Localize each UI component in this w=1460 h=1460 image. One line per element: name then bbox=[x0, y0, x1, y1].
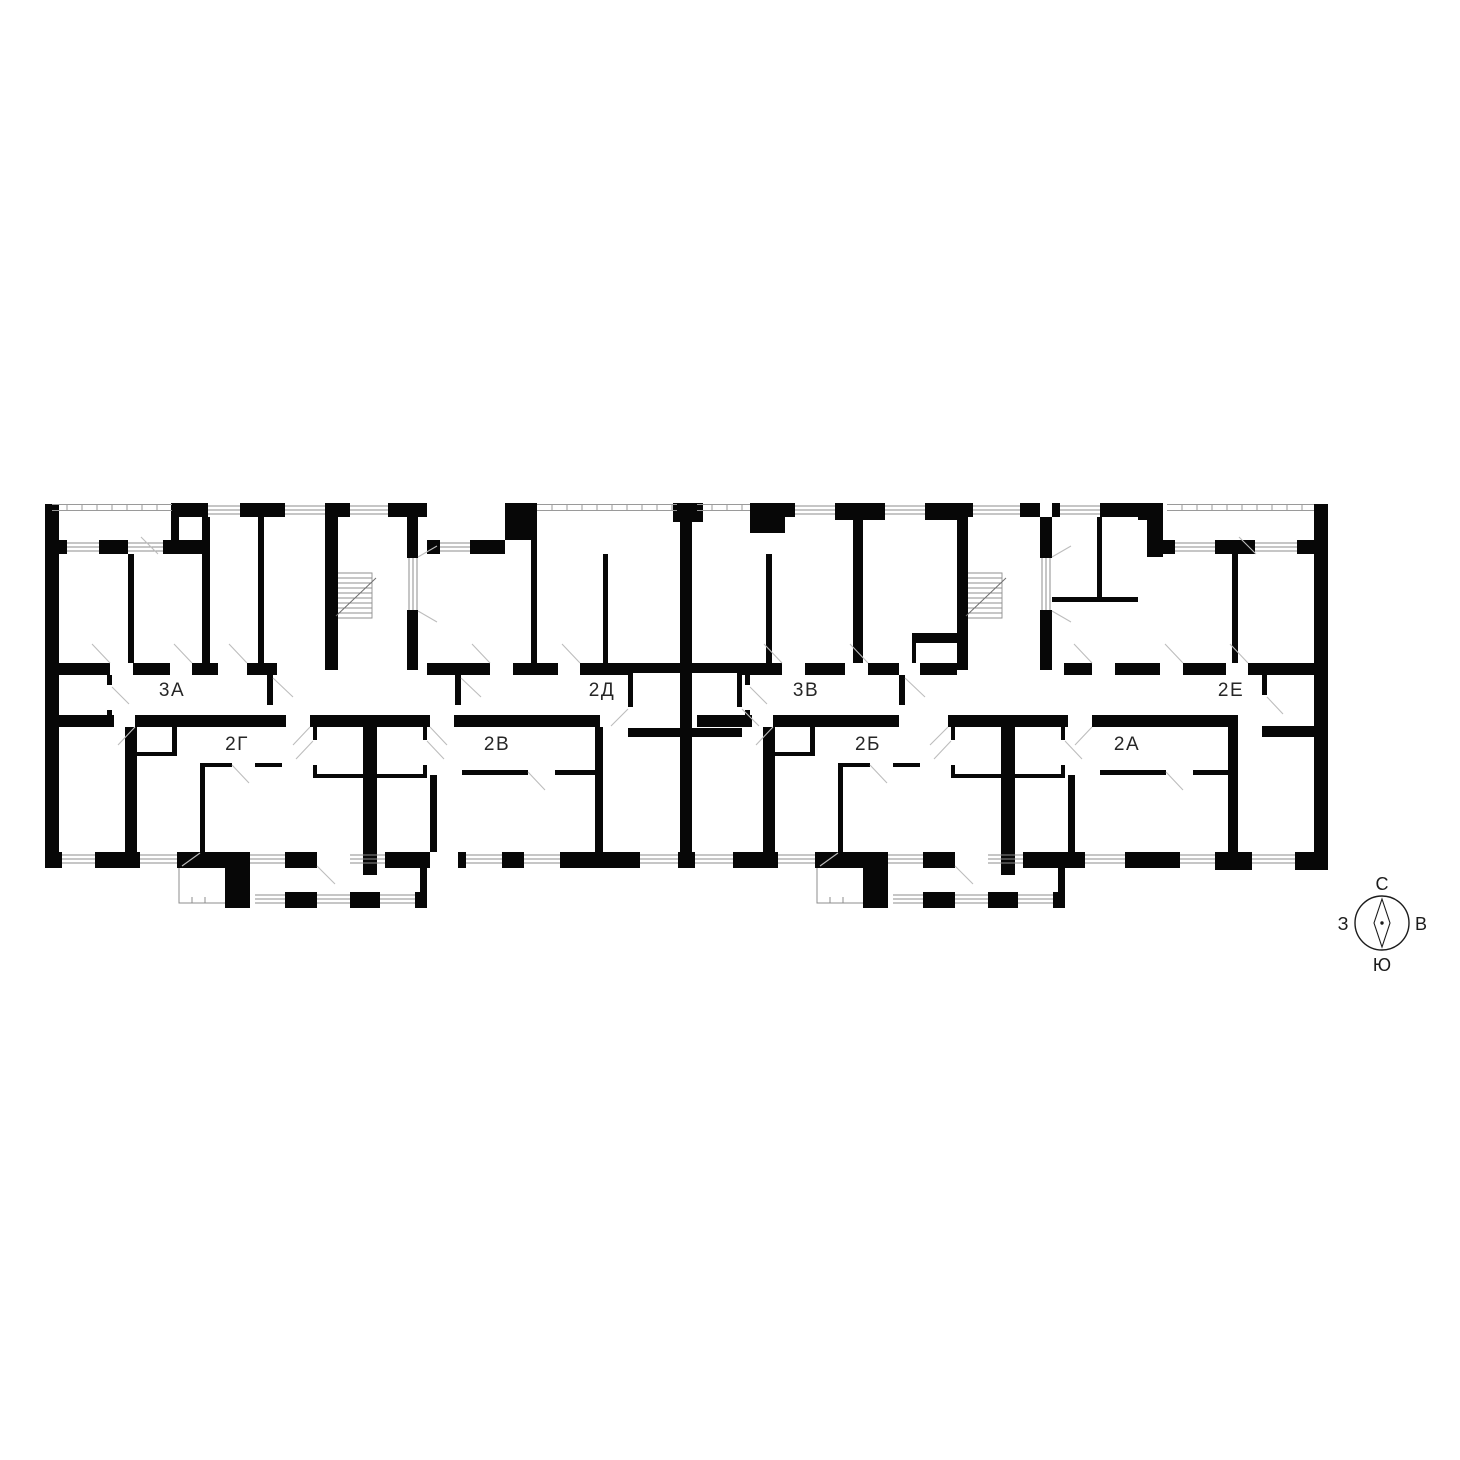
apartment-label-2v: 2В bbox=[484, 734, 510, 755]
compass-north-label: С bbox=[1376, 874, 1389, 894]
apartment-label-2e: 2Е bbox=[1218, 680, 1244, 701]
entrance-porches bbox=[179, 868, 863, 903]
compass-west-label: З bbox=[1338, 914, 1349, 934]
apartment-label-2g: 2Г bbox=[225, 734, 249, 755]
compass-east-label: В bbox=[1415, 914, 1427, 934]
compass-south-label: Ю bbox=[1373, 955, 1391, 975]
windows bbox=[62, 506, 1297, 903]
staircase-left bbox=[336, 573, 376, 618]
apartment-label-3v: 3В bbox=[793, 680, 819, 701]
walls bbox=[45, 503, 1328, 908]
apartment-label-2d: 2Д bbox=[589, 680, 615, 701]
staircase-right bbox=[966, 573, 1006, 618]
compass: С Ю З В bbox=[1338, 874, 1427, 975]
apartment-label-2a: 2А bbox=[1114, 734, 1140, 755]
apartment-label-2b: 2Б bbox=[855, 734, 881, 755]
floor-plan: 3А 2Г 2В 2Д 3В 2Б 2А 2Е С Ю З В bbox=[0, 0, 1460, 1460]
compass-center-dot bbox=[1380, 921, 1383, 924]
apartment-label-3a: 3А bbox=[159, 680, 185, 701]
floor-plan-page: 3А 2Г 2В 2Д 3В 2Б 2А 2Е С Ю З В bbox=[0, 0, 1460, 1460]
